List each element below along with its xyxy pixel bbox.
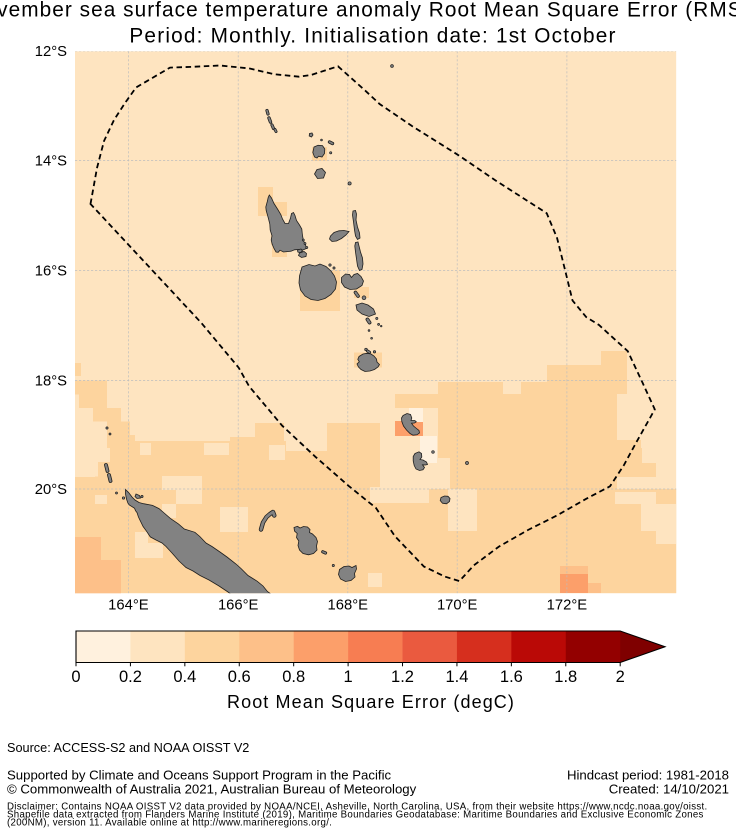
- svg-text:1.4: 1.4: [445, 668, 468, 686]
- svg-text:Hindcast period: 1981-2018: Hindcast period: 1981-2018: [567, 768, 729, 783]
- svg-text:20°S: 20°S: [35, 482, 67, 498]
- svg-text:12°S: 12°S: [35, 44, 67, 60]
- svg-text:Source: ACCESS-S2 and NOAA OIS: Source: ACCESS-S2 and NOAA OISST V2: [7, 741, 249, 755]
- svg-text:1.8: 1.8: [554, 668, 577, 686]
- svg-text:168°E: 168°E: [328, 598, 369, 614]
- svg-text:(200NM), version 11. Available: (200NM), version 11. Available online at…: [7, 818, 332, 829]
- svg-text:1.6: 1.6: [500, 668, 523, 686]
- svg-text:170°E: 170°E: [437, 598, 478, 614]
- svg-text:Period: Monthly. Initialisatio: Period: Monthly. Initialisation date: 1s…: [129, 25, 616, 48]
- svg-text:0.6: 0.6: [228, 668, 251, 686]
- svg-text:November sea surface temperatu: November sea surface temperature anomaly…: [0, 0, 736, 22]
- svg-text:2: 2: [616, 668, 625, 686]
- svg-text:0.4: 0.4: [173, 668, 196, 686]
- svg-text:Root Mean Square Error (degC): Root Mean Square Error (degC): [227, 692, 515, 712]
- svg-text:164°E: 164°E: [108, 598, 149, 614]
- svg-text:© Commonwealth of Australia 20: © Commonwealth of Australia 2021, Austra…: [7, 782, 417, 797]
- svg-text:166°E: 166°E: [218, 598, 259, 614]
- svg-text:172°E: 172°E: [547, 598, 588, 614]
- svg-text:Supported by Climate and Ocean: Supported by Climate and Oceans Support …: [7, 768, 392, 783]
- svg-text:1: 1: [344, 668, 353, 686]
- svg-text:0.2: 0.2: [119, 668, 142, 686]
- svg-text:14°S: 14°S: [35, 153, 67, 169]
- svg-text:0: 0: [71, 668, 80, 686]
- svg-text:1.2: 1.2: [391, 668, 414, 686]
- svg-text:16°S: 16°S: [35, 263, 67, 279]
- svg-text:Created: 14/10/2021: Created: 14/10/2021: [609, 782, 729, 797]
- svg-text:0.8: 0.8: [282, 668, 305, 686]
- svg-text:18°S: 18°S: [35, 374, 67, 390]
